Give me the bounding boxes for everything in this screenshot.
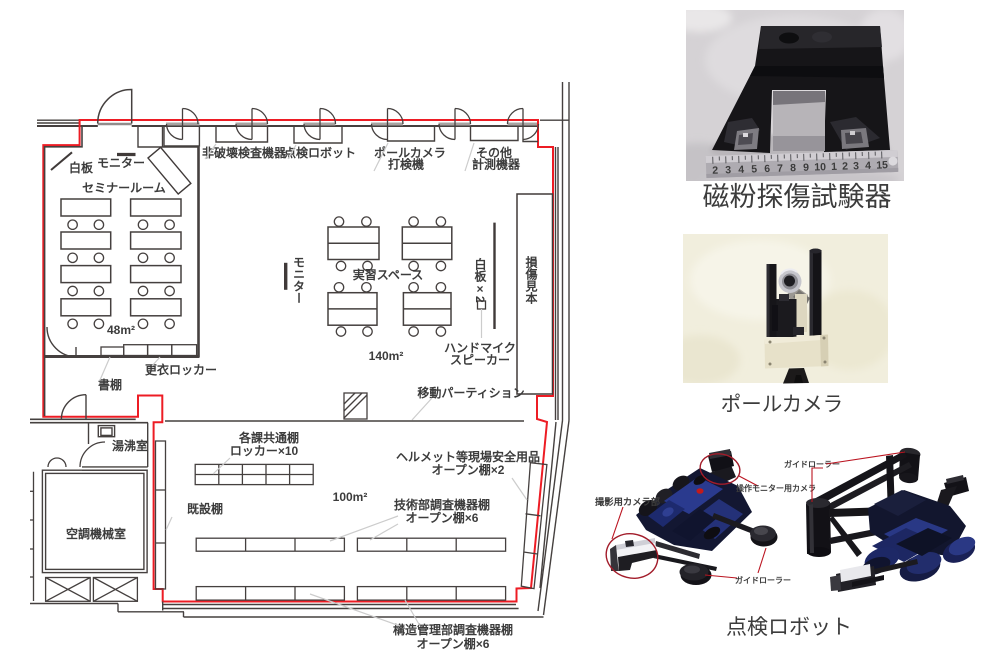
svg-text:6: 6 (764, 163, 770, 175)
svg-text:湯沸室: 湯沸室 (112, 438, 148, 453)
svg-text:オープン棚×2: オープン棚×2 (432, 462, 505, 477)
svg-text:書棚: 書棚 (98, 377, 122, 392)
svg-text:3: 3 (853, 160, 859, 172)
svg-text:ヘルメット等現場安全用品: ヘルメット等現場安全用品 (396, 449, 540, 464)
svg-text:磁粉探傷試験器: 磁粉探傷試験器 (703, 182, 892, 212)
svg-text:白板: 白板 (69, 160, 94, 175)
svg-text:ロッカー×10: ロッカー×10 (230, 444, 299, 458)
svg-text:48m²: 48m² (107, 323, 135, 337)
svg-text:損傷見本: 損傷見本 (524, 255, 538, 305)
svg-text:計測機器: 計測機器 (472, 157, 521, 172)
svg-text:スピーカー: スピーカー (450, 353, 510, 367)
svg-text:モニター: モニター (97, 156, 145, 170)
svg-text:空調機械室: 空調機械室 (66, 526, 126, 541)
svg-text:白板×2: 白板×2 (473, 257, 487, 303)
svg-text:撮影用カメラ部: 撮影用カメラ部 (595, 496, 661, 507)
svg-text:15: 15 (876, 159, 888, 171)
svg-text:操作モニター用カメラ: 操作モニター用カメラ (736, 483, 816, 493)
svg-text:3: 3 (725, 164, 731, 176)
svg-text:ガイドローラー: ガイドローラー (735, 575, 791, 585)
svg-text:移動パーティション: 移動パーティション (417, 385, 524, 400)
svg-text:構造管理部調査機器棚: 構造管理部調査機器棚 (393, 622, 513, 637)
svg-text:140m²: 140m² (369, 349, 404, 363)
svg-text:10: 10 (814, 161, 826, 173)
svg-text:4: 4 (865, 160, 871, 172)
svg-text:2: 2 (842, 160, 848, 172)
svg-text:9: 9 (803, 162, 809, 174)
svg-text:4: 4 (738, 164, 744, 176)
svg-text:1: 1 (831, 161, 837, 173)
svg-text:セミナールーム: セミナールーム (82, 181, 166, 195)
svg-text:既設棚: 既設棚 (187, 501, 223, 516)
svg-text:更衣ロッカー: 更衣ロッカー (145, 362, 217, 377)
svg-text:100m²: 100m² (333, 490, 368, 504)
svg-text:点検ロボット: 点検ロボット (726, 616, 852, 639)
svg-text:実習スペース: 実習スペース (353, 267, 424, 282)
svg-text:8: 8 (790, 162, 796, 174)
svg-text:2: 2 (712, 165, 718, 177)
svg-text:各課共通棚: 各課共通棚 (238, 430, 299, 445)
svg-text:技術部調査機器棚: 技術部調査機器棚 (394, 497, 490, 512)
svg-text:オープン棚×6: オープン棚×6 (417, 636, 490, 651)
svg-text:ポールカメラ: ポールカメラ (721, 393, 843, 416)
svg-text:7: 7 (777, 163, 783, 175)
svg-text:モニター: モニター (292, 256, 306, 304)
svg-text:オープン棚×6: オープン棚×6 (406, 510, 479, 525)
svg-text:5: 5 (751, 163, 757, 175)
svg-text:非破壊検査機器: 非破壊検査機器 (202, 145, 287, 160)
svg-text:打検機: 打検機 (388, 157, 424, 172)
